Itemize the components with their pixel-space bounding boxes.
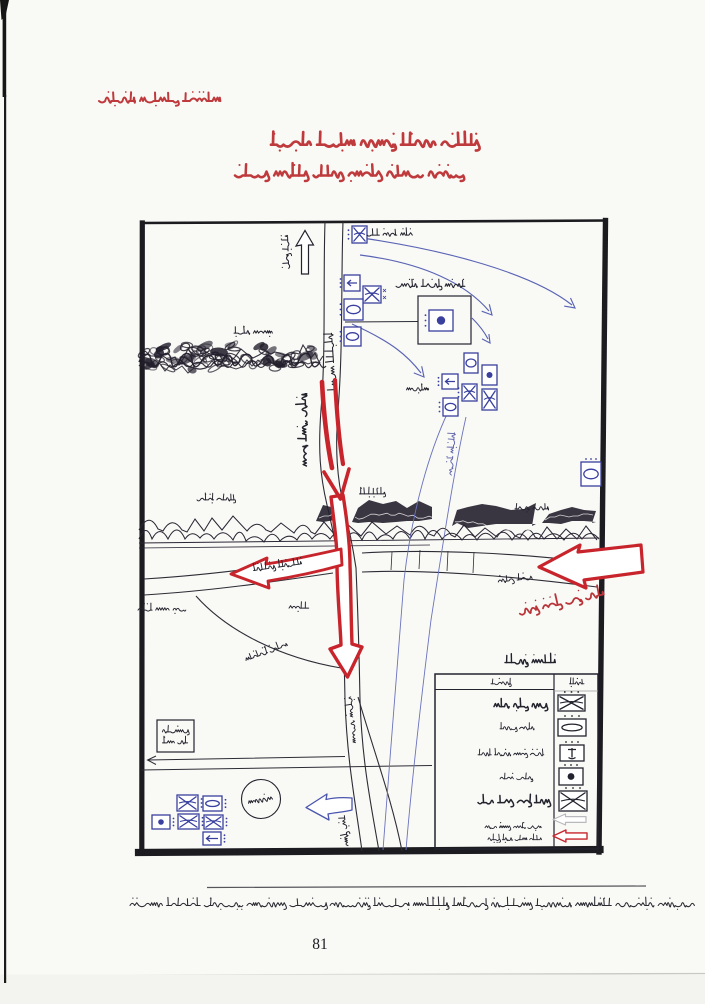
svg-text:81: 81 — [312, 936, 328, 953]
